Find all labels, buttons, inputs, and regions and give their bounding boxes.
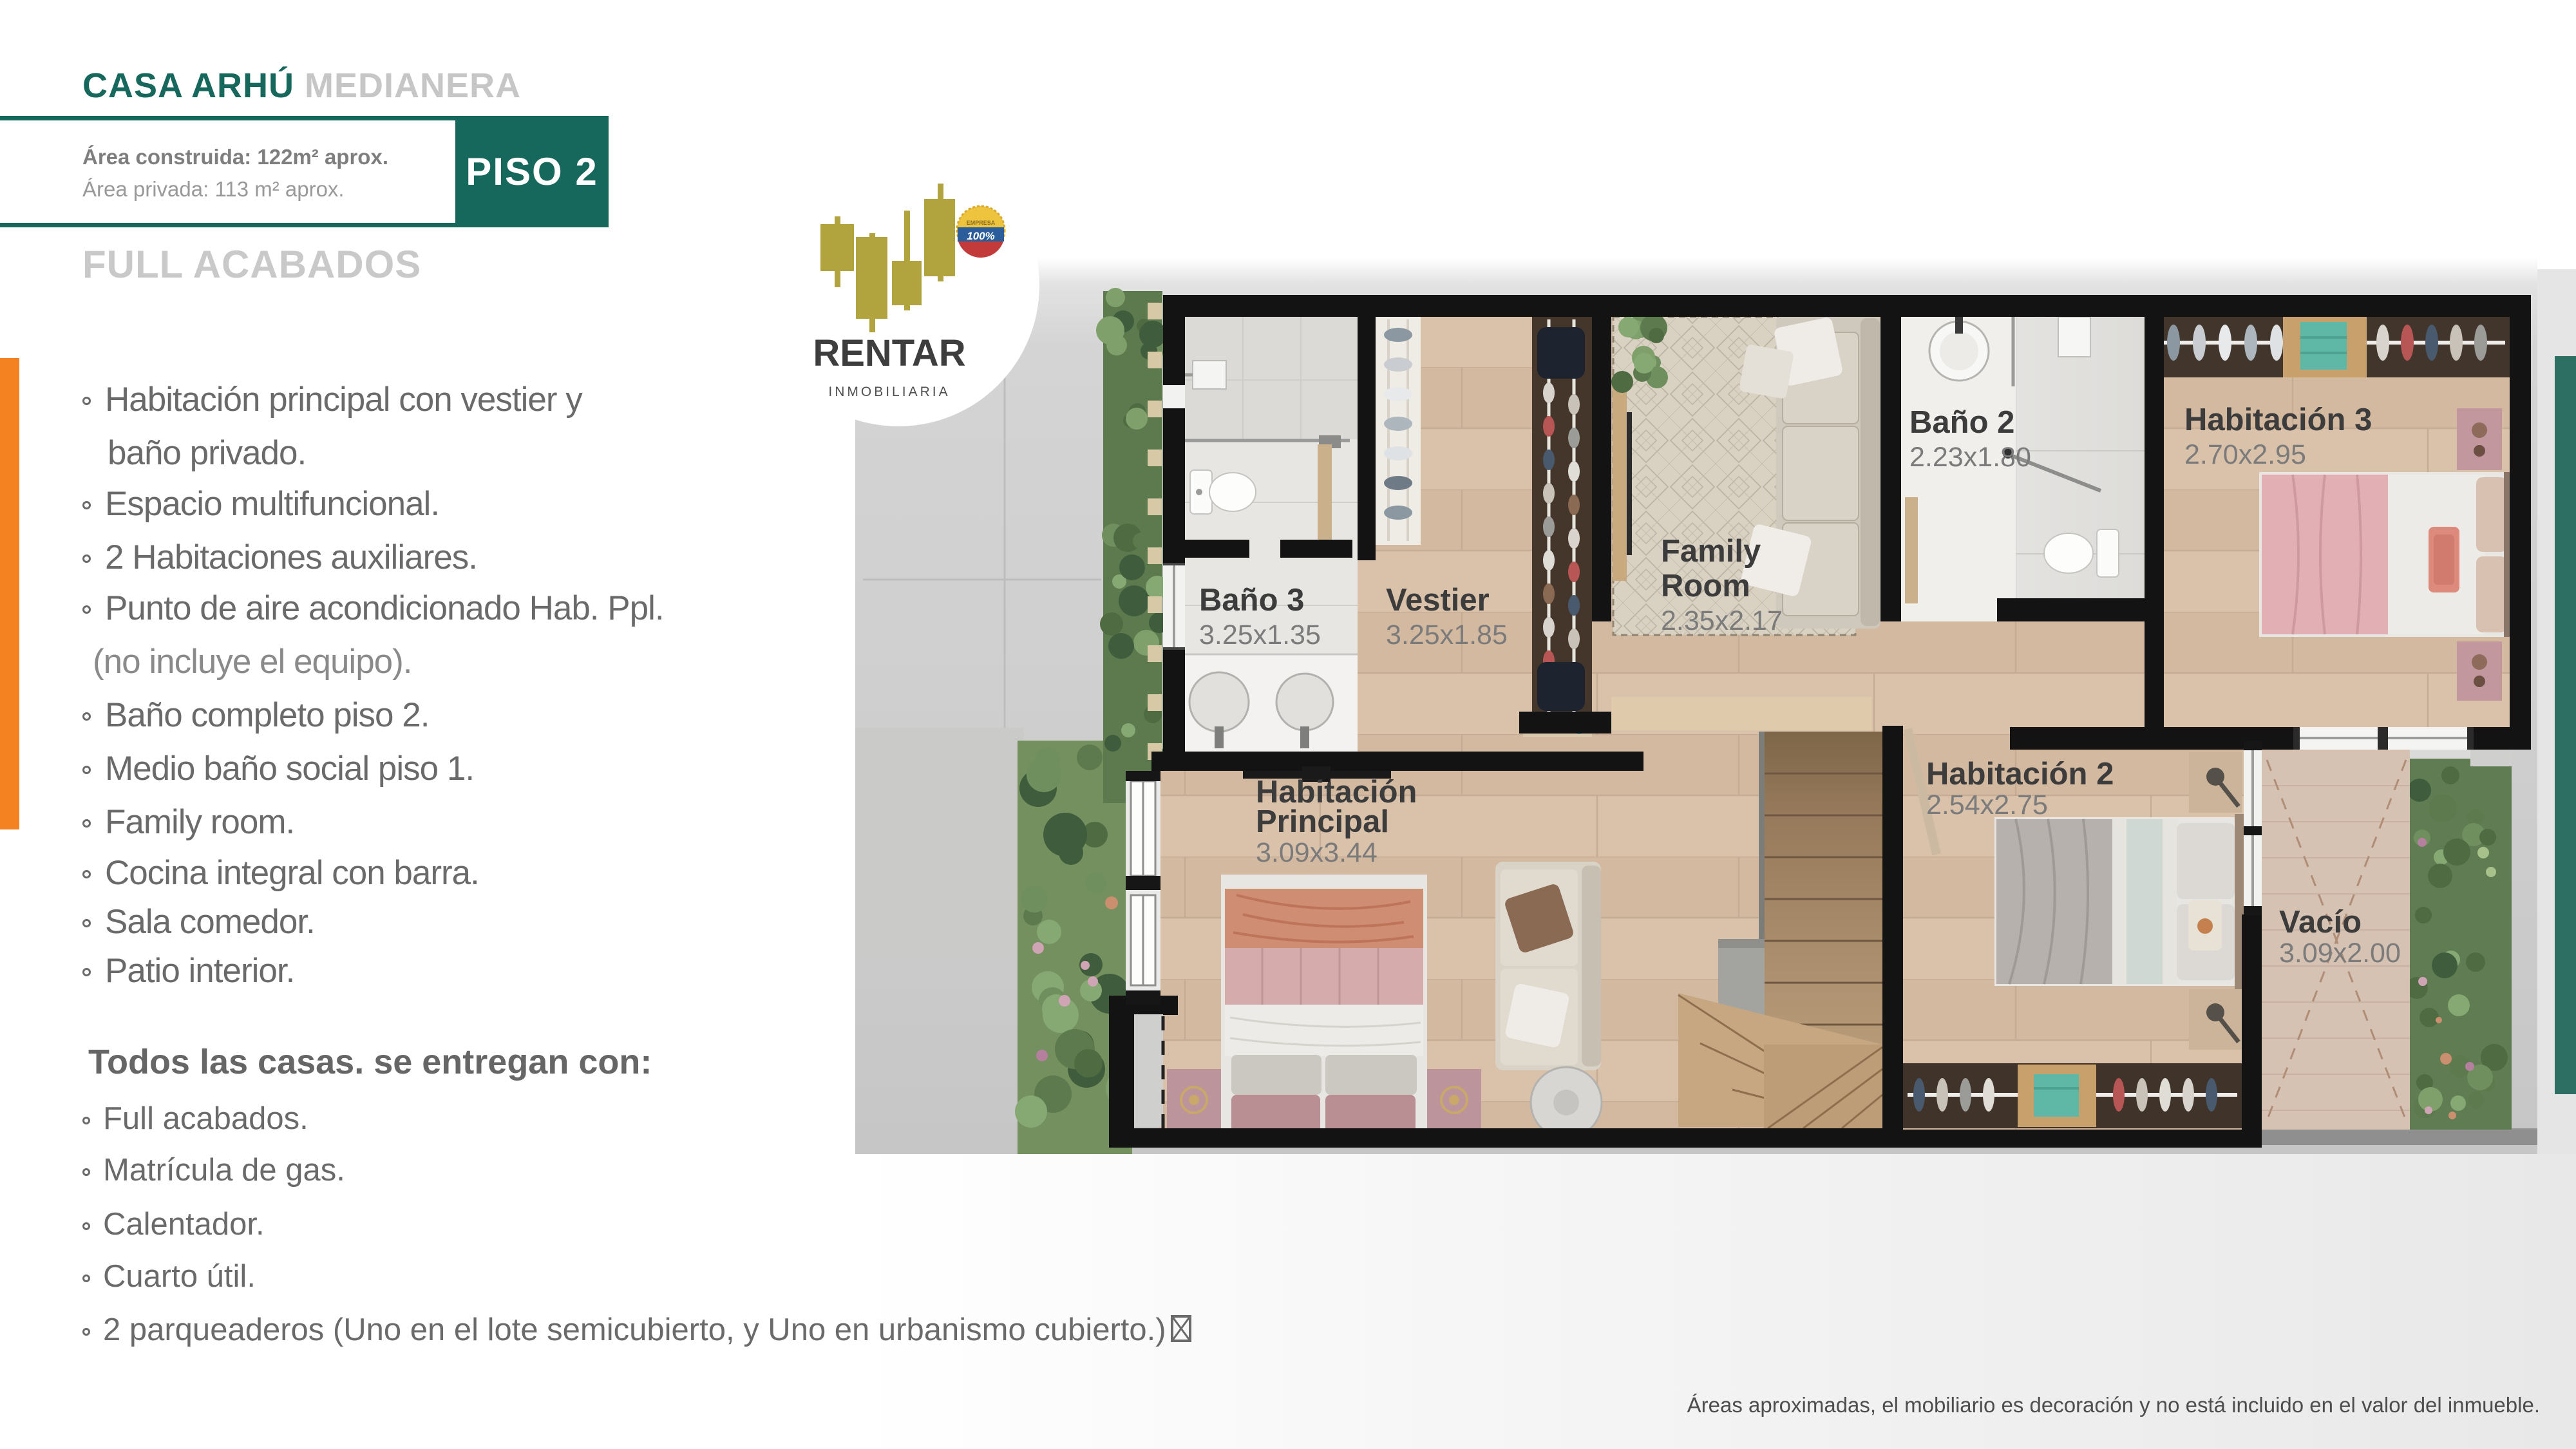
svg-text:Principal: Principal <box>1256 804 1389 839</box>
svg-text:Habitación 2: Habitación 2 <box>1926 757 2114 791</box>
svg-text:3.09x3.44: 3.09x3.44 <box>1256 837 1378 868</box>
svg-text:Habitación 3: Habitación 3 <box>2184 402 2372 437</box>
svg-text:3.09x2.00: 3.09x2.00 <box>2279 938 2401 969</box>
svg-text:RENTAR: RENTAR <box>813 332 965 374</box>
svg-text:2.54x2.75: 2.54x2.75 <box>1926 790 2048 820</box>
svg-text:Vestier: Vestier <box>1386 583 1490 618</box>
svg-text:2.23x1.80: 2.23x1.80 <box>1909 442 2031 473</box>
svg-text:Room: Room <box>1661 569 1750 603</box>
svg-text:Baño 2: Baño 2 <box>1909 405 2014 440</box>
svg-text:Vacío: Vacío <box>2279 905 2362 940</box>
svg-text:Baño 3: Baño 3 <box>1199 583 1304 618</box>
svg-text:Family: Family <box>1661 534 1761 569</box>
svg-text:2.70x2.95: 2.70x2.95 <box>2184 439 2306 470</box>
svg-text:INMOBILIARIA: INMOBILIARIA <box>828 384 950 399</box>
svg-text:100%: 100% <box>967 230 994 242</box>
svg-text:3.25x1.85: 3.25x1.85 <box>1386 620 1508 650</box>
svg-text:2.35x2.17: 2.35x2.17 <box>1661 605 1783 636</box>
svg-text:3.25x1.35: 3.25x1.35 <box>1199 620 1321 650</box>
svg-text:EMPRESA: EMPRESA <box>967 220 996 226</box>
